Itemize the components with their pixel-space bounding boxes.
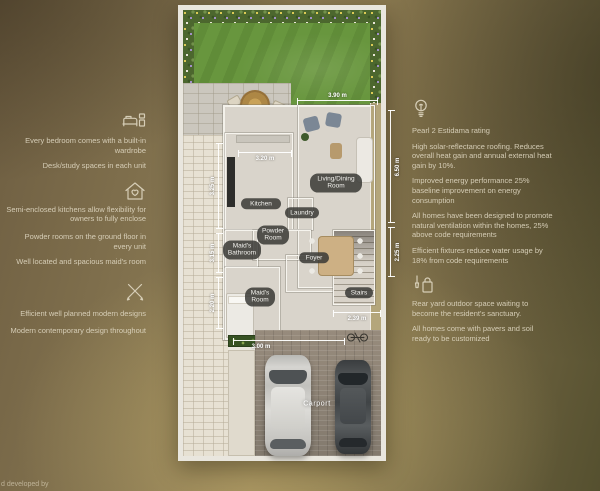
feature-text: Powder rooms on the ground floor in ever… <box>6 232 146 251</box>
feature-text: Desk/study spaces in each unit <box>6 161 146 171</box>
car-dark <box>335 360 371 454</box>
lightbulb-icon <box>412 98 430 120</box>
kitchen-counter <box>227 157 235 207</box>
dimension-kitchen-depth: 3.25 m <box>218 143 219 229</box>
feature-text: Modern contemporary design throughout <box>6 326 146 336</box>
dimension-stairs-depth: 2.25 m <box>390 227 391 277</box>
dimension-garden-width: 3.90 m <box>297 100 378 101</box>
feature-text: Well located and spacious maid's room <box>6 257 146 267</box>
dimension-bathroom-depth: 3.15 m <box>218 233 219 273</box>
room-label-laundry: Laundry <box>285 207 319 218</box>
car-roof <box>271 387 305 429</box>
indoor-plant <box>301 133 309 141</box>
entry-path <box>228 350 255 456</box>
dimension-kitchen-width: 3.20 m <box>238 152 292 153</box>
brochure-page: { "footer": { "developed_by": "d develop… <box>0 0 600 491</box>
right-annotations: Pearl 2 Estidama rating High solar-refle… <box>412 98 554 344</box>
room-label-kitchen: Kitchen <box>241 198 281 209</box>
feature-text: Every bedroom comes with a built-in ward… <box>6 136 146 155</box>
design-tools-icon <box>124 281 146 303</box>
car-roof <box>340 388 366 424</box>
room-label-foyer: Foyer <box>299 252 329 263</box>
floor-plan: Kitchen Living/Dining Room Laundry Powde… <box>178 5 386 461</box>
sustainability-text: High solar-reflectance roofing. Reduces … <box>412 142 554 171</box>
room-label-stairs: Stairs <box>345 287 373 298</box>
outdoor-text: All homes come with pavers and soil read… <box>412 324 554 343</box>
dimension-maids-room-depth: 2.20 m <box>218 277 219 329</box>
coffee-table <box>330 143 342 159</box>
room-label-carport: Carport <box>303 401 331 408</box>
garden-tools-icon <box>412 275 436 295</box>
dimension-stairs-width: 2.39 m <box>333 312 381 313</box>
kitchen-worktop <box>236 135 290 143</box>
room-label-maids-room: Maid's Room <box>245 288 275 307</box>
house-heart-icon <box>124 181 146 201</box>
left-annotations: Every bedroom comes with a built-in ward… <box>6 110 146 336</box>
developer-credit: d developed by <box>1 481 48 488</box>
bed-wardrobe-icon <box>122 110 146 130</box>
feature-text: Semi-enclosed kitchens allow flexibility… <box>6 205 146 224</box>
feature-text: Efficient well planned modern designs <box>6 309 146 319</box>
room-label-living-dining: Living/Dining Room <box>310 174 362 193</box>
room-label-maids-bathroom: Maid's Bathroom <box>223 241 261 260</box>
sustainability-text: Improved energy performance 25% baseline… <box>412 176 554 205</box>
sustainability-text: All homes have been designed to promote … <box>412 211 554 240</box>
rating-text: Pearl 2 Estidama rating <box>412 126 554 136</box>
dimension-house-width: 3.00 m <box>233 340 345 341</box>
outdoor-text: Rear yard outdoor space waiting to becom… <box>412 299 554 318</box>
flower-border-top <box>183 10 381 23</box>
dimension-living-depth: 6.50 m <box>390 110 391 223</box>
walkway-pavers <box>183 135 228 456</box>
sustainability-text: Efficient fixtures reduce water usage by… <box>412 246 554 265</box>
armchair <box>325 112 342 128</box>
room-label-powder: Powder Room <box>257 226 289 245</box>
flower-border-right <box>370 10 381 103</box>
kitchen-room <box>225 133 293 230</box>
